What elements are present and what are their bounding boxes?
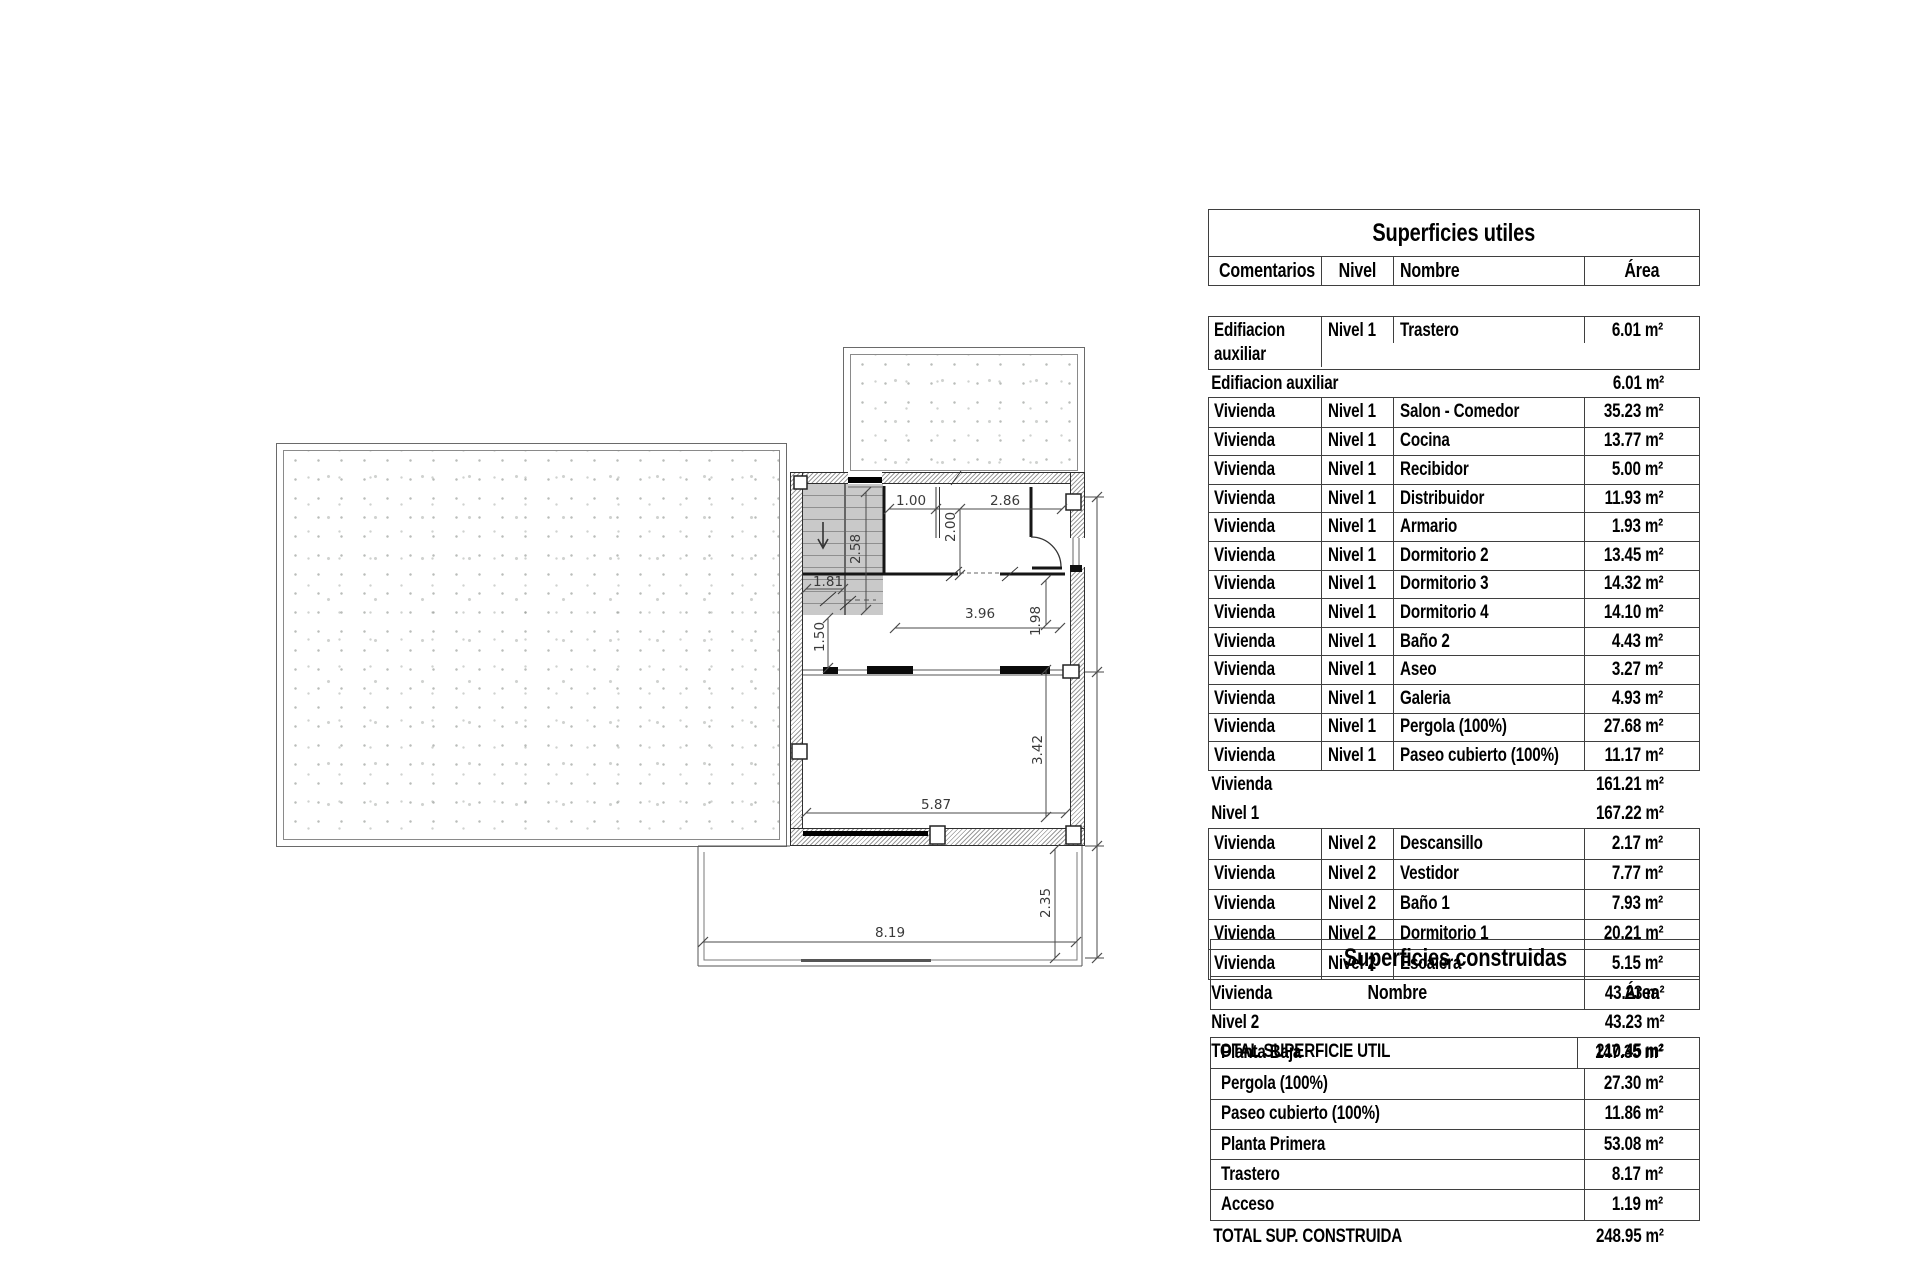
table-row: Edifiacion auxiliar Nivel 1 Trastero 6.0…: [1209, 317, 1699, 369]
subtotal-label: Nivel 1: [1208, 803, 1259, 825]
cell-area: 6.01 m²: [1585, 317, 1699, 343]
cell-name: Distribuidor: [1394, 485, 1585, 513]
total-area: 248.95 m²: [1596, 1226, 1664, 1248]
cell-level: Nivel 1: [1322, 742, 1394, 770]
table-row: Trastero 8.17 m²: [1211, 1159, 1699, 1189]
table-row: Vivienda Nivel 2 Baño 1 7.93 m²: [1209, 889, 1699, 919]
cell-name: Dormitorio 3: [1394, 571, 1585, 599]
cell-level: Nivel 1: [1322, 628, 1394, 656]
dimension-label: 2.58: [848, 534, 864, 564]
cell-comments: Vivienda: [1209, 599, 1322, 627]
table-row: Vivienda Nivel 1 Dormitorio 4 14.10 m²: [1209, 598, 1699, 627]
utiles-subtotals-nivel1: Vivienda 161.21 m² Nivel 1 167.22 m²: [1208, 771, 1700, 828]
cell-area: 53.08 m²: [1585, 1130, 1699, 1159]
superficies-construidas-table: Superficies construidas Nombre Área Plan…: [1210, 939, 1700, 1253]
cell-area: 14.10 m²: [1585, 599, 1699, 627]
table-row: Vivienda Nivel 1 Pergola (100%) 27.68 m²: [1209, 713, 1699, 742]
patio-outline: [698, 846, 1082, 966]
cell-comments: Vivienda: [1209, 829, 1322, 859]
cell-comments: Vivienda: [1209, 656, 1322, 684]
cell-level: Nivel 2: [1322, 860, 1394, 889]
cell-comments: Vivienda: [1209, 398, 1322, 427]
cell-level: Nivel 1: [1322, 398, 1394, 427]
dimension-label: 3.96: [965, 606, 995, 622]
dimension-label: 2.00: [943, 512, 959, 542]
table-row: Vivienda Nivel 1 Baño 2 4.43 m²: [1209, 627, 1699, 656]
utiles-subtotals-aux: Edifiacion auxiliar 6.01 m²: [1208, 370, 1700, 397]
table-row: Acceso 1.19 m²: [1211, 1189, 1699, 1219]
cell-area: 13.77 m²: [1585, 428, 1699, 456]
cell-area: 27.30 m²: [1585, 1069, 1699, 1098]
cell-comments: Vivienda: [1209, 571, 1322, 599]
cell-area: 35.23 m²: [1585, 398, 1699, 427]
table-row: Vivienda Nivel 1 Distribuidor 11.93 m²: [1209, 484, 1699, 513]
cell-area: 7.93 m²: [1585, 890, 1699, 919]
table-row: Vivienda Nivel 1 Aseo 3.27 m²: [1209, 655, 1699, 684]
subtotal-row: Nivel 1 167.22 m²: [1208, 799, 1700, 828]
cell-name: Pergola (100%): [1211, 1069, 1585, 1098]
cell-comments: Vivienda: [1209, 742, 1322, 770]
total-label: TOTAL SUP. CONSTRUIDA: [1210, 1226, 1402, 1248]
header-nivel: Nivel: [1322, 257, 1394, 285]
cell-level: Nivel 1: [1322, 656, 1394, 684]
cell-name: Baño 2: [1394, 628, 1585, 656]
table-row: Planta Primera 53.08 m²: [1211, 1129, 1699, 1159]
wall-top: [790, 472, 1085, 484]
subtotal-row: Vivienda 161.21 m²: [1208, 771, 1700, 800]
utiles-block-nivel1: Vivienda Nivel 1 Salon - Comedor 35.23 m…: [1208, 397, 1700, 771]
utiles-title: Superficies utiles: [1208, 209, 1700, 257]
dimension-label: 2.86: [990, 493, 1020, 509]
construidas-title-text: Superficies construidas: [1343, 944, 1566, 973]
cell-name: Planta Primera: [1211, 1130, 1585, 1159]
utiles-title-text: Superficies utiles: [1373, 219, 1536, 248]
dimension-label: 1.81: [813, 574, 843, 590]
dimension-label: 1.50: [812, 622, 828, 652]
cell-area: 5.00 m²: [1585, 456, 1699, 484]
cell-area: 27.68 m²: [1585, 714, 1699, 742]
cell-area: 1.93 m²: [1585, 513, 1699, 541]
cell-comments: Vivienda: [1209, 860, 1322, 889]
cell-area: 11.93 m²: [1585, 485, 1699, 513]
cell-comments: Edifiacion auxiliar: [1209, 317, 1322, 367]
cell-name: Paseo cubierto (100%): [1211, 1100, 1585, 1129]
cell-name: Vestidor: [1394, 860, 1585, 889]
subtotal-row: Edifiacion auxiliar 6.01 m²: [1208, 370, 1700, 397]
cell-name: Descansillo: [1394, 829, 1585, 859]
cell-area: 11.17 m²: [1585, 742, 1699, 770]
table-row: Pergola (100%) 27.30 m²: [1211, 1068, 1699, 1098]
cell-name: Trastero: [1394, 317, 1585, 343]
table-row: Vivienda Nivel 1 Dormitorio 3 14.32 m²: [1209, 570, 1699, 599]
cell-area: 7.77 m²: [1585, 860, 1699, 889]
construidas-rows: Planta Baja 147.35 m² Pergola (100%) 27.…: [1210, 1037, 1700, 1221]
drawing-sheet: 1.00 2.86 2.00 2.58 1.81 1.50 3.96 1.98 …: [0, 0, 1920, 1280]
auxiliary-roof-area: [843, 347, 1085, 478]
cell-area: 4.43 m²: [1585, 628, 1699, 656]
cell-level: Nivel 1: [1322, 513, 1394, 541]
utiles-header-row: Comentarios Nivel Nombre Área: [1208, 257, 1700, 286]
cell-level: Nivel 2: [1322, 829, 1394, 859]
cell-level: Nivel 1: [1322, 456, 1394, 484]
cell-comments: Vivienda: [1209, 485, 1322, 513]
cell-name: Armario: [1394, 513, 1585, 541]
table-row: Vivienda Nivel 1 Dormitorio 2 13.45 m²: [1209, 541, 1699, 570]
cell-name: Pergola (100%): [1394, 714, 1585, 742]
terrace-area: [276, 443, 787, 847]
cell-area: 147.35 m²: [1578, 1038, 1699, 1068]
table-row: Planta Baja 147.35 m²: [1211, 1038, 1699, 1068]
cell-level: Nivel 1: [1322, 571, 1394, 599]
table-row: Vivienda Nivel 1 Recibidor 5.00 m²: [1209, 455, 1699, 484]
table-row: Vivienda Nivel 1 Cocina 13.77 m²: [1209, 427, 1699, 456]
table-row: Vivienda Nivel 2 Descansillo 2.17 m²: [1209, 829, 1699, 859]
subtotal-area: 6.01 m²: [1613, 373, 1664, 395]
patio-threshold-bar: [801, 959, 931, 962]
cell-comments: Vivienda: [1209, 890, 1322, 919]
subtotal-label: Edifiacion auxiliar: [1208, 373, 1338, 395]
construidas-title: Superficies construidas: [1210, 939, 1700, 977]
dimension-label: 2.35: [1038, 888, 1054, 918]
cell-area: 14.32 m²: [1585, 571, 1699, 599]
cell-name: Baño 1: [1394, 890, 1585, 919]
cell-comments: Vivienda: [1209, 428, 1322, 456]
cell-area: 11.86 m²: [1585, 1100, 1699, 1129]
table-row: Vivienda Nivel 1 Paseo cubierto (100%) 1…: [1209, 741, 1699, 770]
table-row: Paseo cubierto (100%) 11.86 m²: [1211, 1099, 1699, 1129]
cell-area: 4.93 m²: [1585, 685, 1699, 713]
header-area: Área: [1585, 977, 1699, 1009]
cell-name: Acceso: [1211, 1190, 1585, 1219]
cell-comments: Vivienda: [1209, 685, 1322, 713]
cell-name: Aseo: [1394, 656, 1585, 684]
auxiliary-roof-surface: [850, 354, 1078, 471]
subtotal-area: 167.22 m²: [1596, 803, 1664, 825]
utiles-block-aux: Edifiacion auxiliar Nivel 1 Trastero 6.0…: [1208, 316, 1700, 370]
cell-level: Nivel 1: [1322, 685, 1394, 713]
dimension-label: 3.42: [1030, 735, 1046, 765]
cell-area: 8.17 m²: [1585, 1160, 1699, 1189]
cell-name: Paseo cubierto (100%): [1394, 742, 1585, 770]
cell-level: Nivel 1: [1322, 485, 1394, 513]
cell-area: 13.45 m²: [1585, 542, 1699, 570]
header-area: Área: [1585, 257, 1699, 285]
wall-bottom: [790, 828, 1085, 846]
subtotal-label: Vivienda: [1208, 774, 1272, 796]
cell-comments: Vivienda: [1209, 628, 1322, 656]
cell-comments: Vivienda: [1209, 542, 1322, 570]
cell-name: Planta Baja: [1211, 1038, 1578, 1068]
table-row: Vivienda Nivel 1 Armario 1.93 m²: [1209, 512, 1699, 541]
cell-name: Trastero: [1211, 1160, 1585, 1189]
wall-left: [790, 472, 803, 846]
dimension-label: 5.87: [921, 797, 951, 813]
cell-area: 1.19 m²: [1585, 1190, 1699, 1219]
terrace-surface: [283, 450, 780, 840]
cell-comments: Vivienda: [1209, 456, 1322, 484]
cell-name: Dormitorio 4: [1394, 599, 1585, 627]
cell-level: Nivel 1: [1322, 317, 1394, 343]
cell-comments: Vivienda: [1209, 714, 1322, 742]
table-row: Vivienda Nivel 1 Galeria 4.93 m²: [1209, 684, 1699, 713]
cell-name: Cocina: [1394, 428, 1585, 456]
dimension-label: 1.98: [1028, 606, 1044, 636]
header-nombre: Nombre: [1211, 977, 1585, 1009]
cell-area: 2.17 m²: [1585, 829, 1699, 859]
cell-name: Recibidor: [1394, 456, 1585, 484]
cell-area: 3.27 m²: [1585, 656, 1699, 684]
dimension-label: 1.00: [896, 493, 926, 509]
cell-level: Nivel 1: [1322, 428, 1394, 456]
cell-level: Nivel 1: [1322, 714, 1394, 742]
cell-level: Nivel 1: [1322, 542, 1394, 570]
cell-name: Salon - Comedor: [1394, 398, 1585, 427]
cell-name: Galeria: [1394, 685, 1585, 713]
stair-center-line: [844, 484, 846, 615]
header-nombre: Nombre: [1394, 257, 1585, 285]
wall-right: [1070, 472, 1085, 846]
cell-level: Nivel 1: [1322, 599, 1394, 627]
cell-level: Nivel 2: [1322, 890, 1394, 919]
dimension-label: 8.19: [875, 925, 905, 941]
table-row: Vivienda Nivel 2 Vestidor 7.77 m²: [1209, 859, 1699, 889]
cell-name: Dormitorio 2: [1394, 542, 1585, 570]
table-row: Vivienda Nivel 1 Salon - Comedor 35.23 m…: [1209, 398, 1699, 427]
construidas-header-row: Nombre Área: [1210, 977, 1700, 1010]
cell-comments: Vivienda: [1209, 513, 1322, 541]
staircase: [803, 484, 883, 615]
construidas-total-row: TOTAL SUP. CONSTRUIDA 248.95 m²: [1210, 1221, 1700, 1253]
header-comentarios: Comentarios: [1209, 257, 1322, 285]
subtotal-area: 161.21 m²: [1596, 774, 1664, 796]
